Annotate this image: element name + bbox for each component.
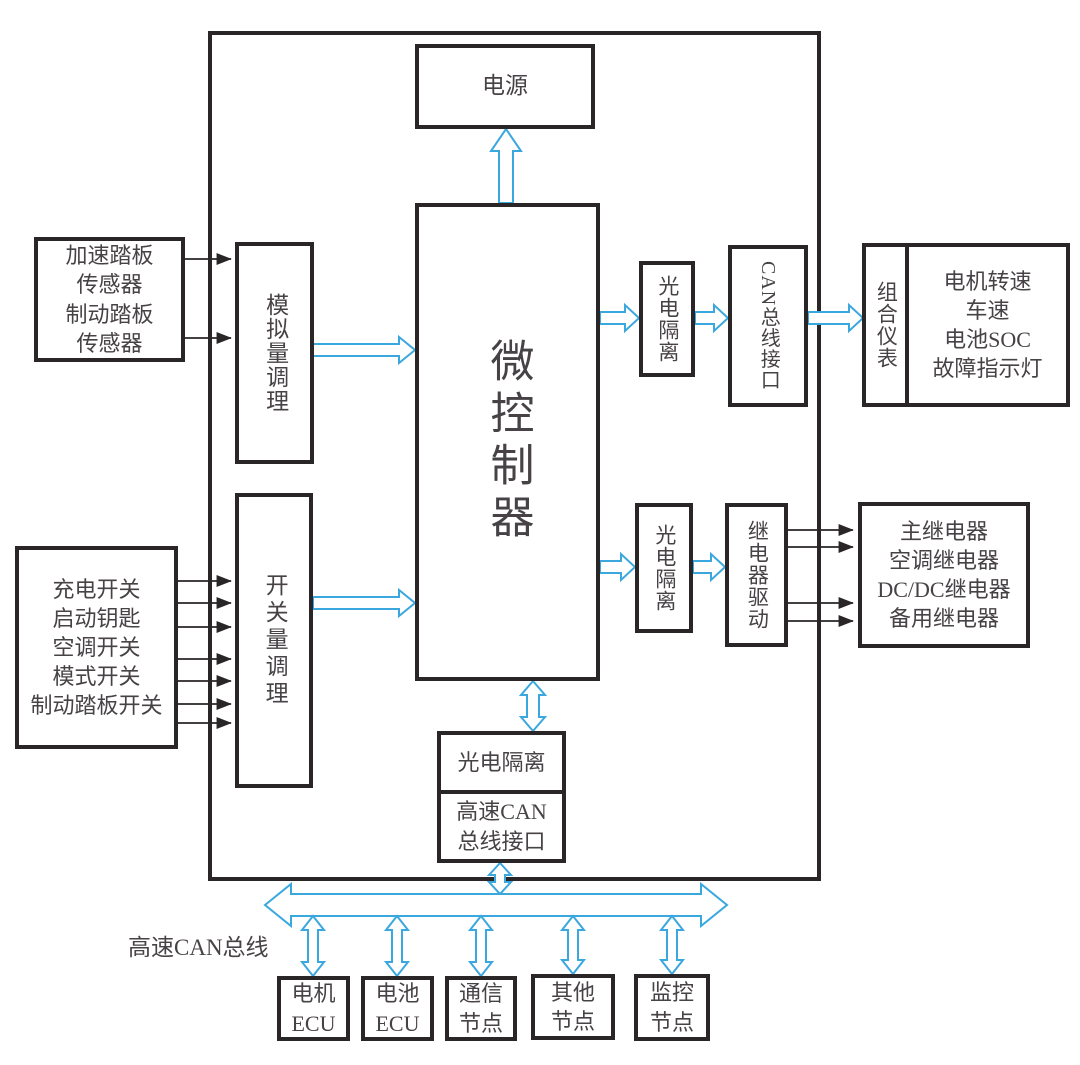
pedal-sensors-box: 加速踏板 传感器 制动踏板 传感器 bbox=[34, 237, 185, 362]
relays-text: 主继电器 空调继电器 DC/DC继电器 备用继电器 bbox=[877, 517, 1010, 633]
bus-to-battery-ecu-arrow bbox=[386, 916, 408, 976]
comm-node-line-2: 节点 bbox=[459, 1009, 503, 1038]
power-label: 电源 bbox=[482, 71, 528, 101]
switch-conditioning-box: 开关量调理 bbox=[235, 493, 313, 788]
hs-can-interface-text: 高速CAN 总线接口 bbox=[456, 797, 546, 855]
switch-inputs-line-5: 制动踏板开关 bbox=[30, 691, 162, 720]
vcu-block-diagram: 电源 微控制器 模拟量调理 开关量调理 加速踏板 传感器 制动踏板 传感器 充电… bbox=[0, 0, 1080, 1065]
relays-line-4: 备用继电器 bbox=[889, 604, 999, 633]
opto-isolation-bottom-label: 光电隔离 bbox=[457, 748, 545, 777]
analog-conditioning-label: 模拟量调理 bbox=[259, 293, 289, 413]
comm-node-line-1: 通信 bbox=[459, 979, 503, 1008]
cluster-display-box: 电机转速 车速 电池SOC 故障指示灯 bbox=[905, 243, 1070, 407]
relays-line-2: 空调继电器 bbox=[889, 546, 999, 575]
battery-ecu-line-2: ECU bbox=[375, 1009, 419, 1038]
mcu-label: 微控制器 bbox=[478, 338, 536, 546]
comm-node-box: 通信 节点 bbox=[445, 976, 517, 1041]
hs-can-interface-box: 高速CAN 总线接口 bbox=[437, 790, 566, 863]
hs-can-interface-line-2: 总线接口 bbox=[457, 827, 545, 856]
other-node-text: 其他 节点 bbox=[551, 978, 595, 1036]
opto-mid-to-relaydrive-arrow bbox=[693, 554, 725, 580]
monitor-node-text: 监控 节点 bbox=[650, 978, 694, 1036]
other-node-box: 其他 节点 bbox=[531, 974, 615, 1040]
switch-inputs-line-4: 模式开关 bbox=[52, 662, 140, 691]
can-bus-interface-box: CAN总线接口 bbox=[728, 245, 808, 407]
analog-to-mcu-arrow bbox=[313, 337, 415, 363]
pedal-sensors-text: 加速踏板 传感器 制动踏板 传感器 bbox=[65, 241, 153, 357]
hs-can-interface-line-1: 高速CAN bbox=[456, 797, 546, 826]
motor-ecu-text: 电机 ECU bbox=[291, 979, 335, 1037]
mcu-box: 微控制器 bbox=[415, 203, 600, 681]
monitor-node-line-1: 监控 bbox=[650, 978, 694, 1007]
motor-ecu-box: 电机 ECU bbox=[277, 976, 350, 1041]
relay-drive-label: 继电器驱动 bbox=[743, 520, 771, 630]
pedal-sensors-line-1: 加速踏板 bbox=[65, 241, 153, 270]
mcu-to-opto-mid-arrow bbox=[600, 554, 635, 580]
canif-to-cluster-arrow bbox=[808, 305, 863, 331]
switchcond-to-mcu-arrow bbox=[313, 590, 415, 616]
switch-inputs-line-2: 启动钥匙 bbox=[52, 604, 140, 633]
mcu-to-power-arrow bbox=[491, 129, 521, 203]
can-bus-interface-label: CAN总线接口 bbox=[755, 261, 781, 390]
motor-ecu-line-2: ECU bbox=[291, 1009, 335, 1038]
relay-drive-box: 继电器驱动 bbox=[725, 503, 788, 647]
relays-line-3: DC/DC继电器 bbox=[877, 575, 1010, 604]
bus-to-comm-node-arrow bbox=[470, 916, 492, 976]
other-node-line-2: 节点 bbox=[551, 1007, 595, 1036]
battery-ecu-line-1: 电池 bbox=[375, 979, 419, 1008]
switch-inputs-box: 充电开关 启动钥匙 空调开关 模式开关 制动踏板开关 bbox=[15, 546, 178, 749]
monitor-node-line-2: 节点 bbox=[650, 1008, 694, 1037]
instrument-cluster-box: 组合仪表 bbox=[862, 243, 909, 407]
battery-ecu-box: 电池 ECU bbox=[361, 976, 434, 1041]
switch-signal-arrows bbox=[178, 581, 231, 723]
opto-isolation-mid-box: 光电隔离 bbox=[635, 503, 693, 633]
power-box: 电源 bbox=[415, 44, 595, 129]
mcu-opto-bottom-bidir-arrow bbox=[521, 681, 545, 731]
opto-isolation-top-box: 光电隔离 bbox=[639, 261, 695, 377]
bus-to-motor-ecu-arrow bbox=[302, 916, 324, 976]
pedal-sensors-line-3: 制动踏板 bbox=[65, 300, 153, 329]
bus-to-monitor-node-arrow bbox=[661, 916, 683, 974]
opto-isolation-top-label: 光电隔离 bbox=[653, 275, 681, 363]
other-node-line-1: 其他 bbox=[551, 978, 595, 1007]
pedal-sensors-line-4: 传感器 bbox=[76, 329, 142, 358]
monitor-node-box: 监控 节点 bbox=[634, 974, 710, 1041]
instrument-cluster-label: 组合仪表 bbox=[872, 281, 900, 369]
cluster-display-line-3: 电池SOC bbox=[944, 325, 1031, 354]
cluster-display-line-4: 故障指示灯 bbox=[932, 354, 1042, 383]
hs-can-bus-label: 高速CAN总线 bbox=[128, 928, 269, 962]
cluster-display-line-1: 电机转速 bbox=[943, 267, 1031, 296]
comm-node-text: 通信 节点 bbox=[459, 979, 503, 1037]
motor-ecu-line-1: 电机 bbox=[291, 979, 335, 1008]
cluster-display-line-2: 车速 bbox=[965, 296, 1009, 325]
switch-inputs-line-3: 空调开关 bbox=[52, 633, 140, 662]
opto-isolation-mid-label: 光电隔离 bbox=[650, 524, 678, 612]
battery-ecu-text: 电池 ECU bbox=[375, 979, 419, 1037]
pedal-sensors-line-2: 传感器 bbox=[76, 270, 142, 299]
analog-conditioning-box: 模拟量调理 bbox=[235, 242, 314, 464]
relays-box: 主继电器 空调继电器 DC/DC继电器 备用继电器 bbox=[858, 502, 1030, 648]
opto-isolation-bottom-box: 光电隔离 bbox=[437, 731, 566, 794]
relays-line-1: 主继电器 bbox=[900, 517, 988, 546]
opto-top-to-canif-arrow bbox=[695, 305, 728, 331]
cluster-display-text: 电机转速 车速 电池SOC 故障指示灯 bbox=[932, 267, 1042, 383]
mcu-to-opto-top-arrow bbox=[600, 305, 639, 331]
switch-inputs-line-1: 充电开关 bbox=[52, 575, 140, 604]
switch-inputs-text: 充电开关 启动钥匙 空调开关 模式开关 制动踏板开关 bbox=[30, 575, 162, 720]
switch-conditioning-label: 开关量调理 bbox=[259, 573, 289, 708]
bus-to-other-node-arrow bbox=[562, 916, 584, 974]
